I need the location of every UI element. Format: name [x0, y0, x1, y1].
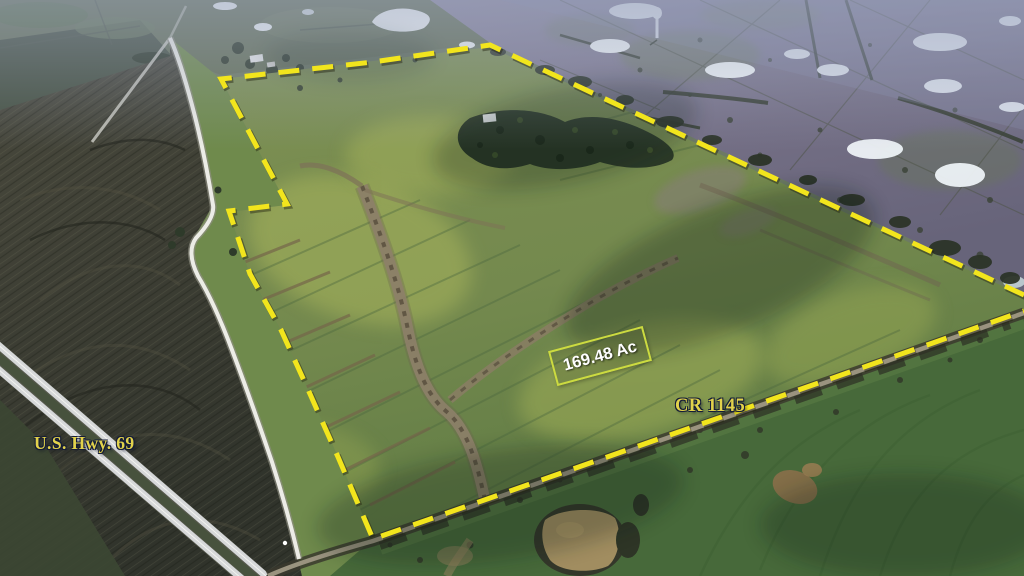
scene-svg [0, 0, 1024, 576]
county-road-label: CR 1145 [675, 396, 745, 417]
aerial-property-photo: U.S. Hwy. 69 CR 1145 169.48 Ac [0, 0, 1024, 576]
highway-label: U.S. Hwy. 69 [34, 433, 135, 454]
vehicle-dot [283, 541, 287, 545]
